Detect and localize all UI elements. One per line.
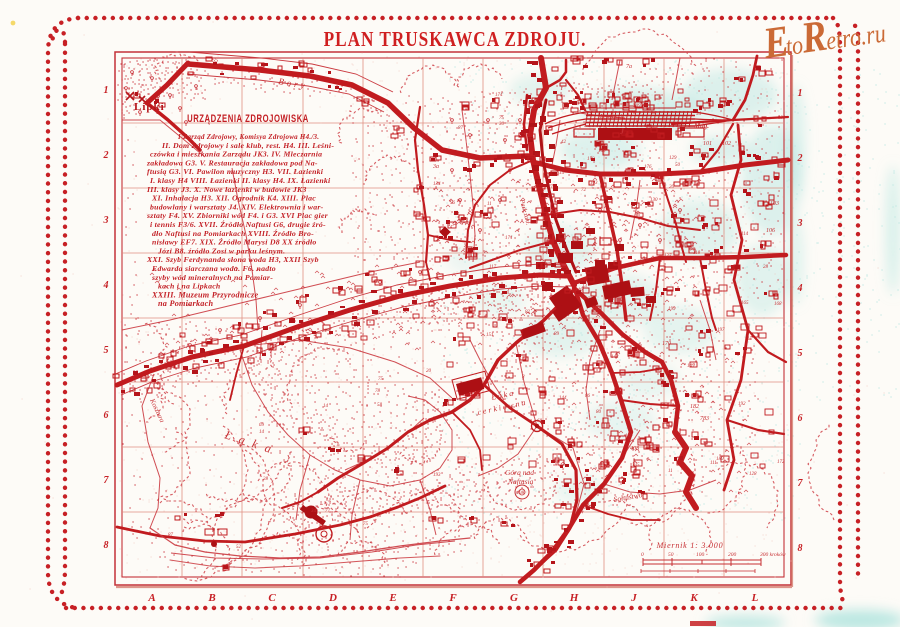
svg-text:172: 172 — [777, 460, 785, 465]
svg-text:I Zarząd Zdrojowy, Komisya Zdr: I Zarząd Zdrojowy, Komisya Zdrojowa H4./… — [177, 133, 319, 141]
svg-text:64: 64 — [640, 259, 646, 264]
svg-text:Góra nad: Góra nad — [505, 468, 534, 477]
svg-text:408: 408 — [516, 489, 525, 496]
svg-text:139: 139 — [778, 116, 786, 121]
svg-text:128: 128 — [749, 472, 757, 477]
svg-text:143: 143 — [611, 355, 619, 360]
svg-text:77: 77 — [690, 248, 696, 253]
svg-text:F: F — [448, 592, 457, 604]
svg-text:2: 2 — [103, 150, 109, 161]
svg-text:50: 50 — [675, 163, 681, 168]
svg-text:193: 193 — [433, 473, 441, 478]
svg-text:8: 8 — [798, 543, 803, 554]
svg-text:182: 182 — [690, 404, 699, 410]
svg-text:28: 28 — [263, 477, 269, 482]
svg-text:URZĄDZENIA ZDROJOWISKA: URZĄDZENIA ZDROJOWISKA — [187, 113, 309, 126]
svg-text:100: 100 — [696, 552, 705, 558]
svg-text:77: 77 — [325, 509, 331, 514]
svg-text:101: 101 — [703, 141, 712, 147]
svg-text:58: 58 — [377, 403, 383, 408]
svg-text:300 kroków: 300 kroków — [759, 552, 786, 558]
svg-text:129: 129 — [669, 156, 677, 161]
svg-text:87: 87 — [458, 126, 464, 131]
svg-text:197: 197 — [717, 328, 725, 333]
svg-text:20: 20 — [426, 369, 432, 374]
svg-text:14: 14 — [259, 430, 265, 435]
svg-text:K: K — [689, 592, 698, 604]
svg-text:200: 200 — [728, 552, 737, 558]
svg-text:20: 20 — [669, 185, 675, 190]
svg-text:kach i na Lipkach: kach i na Lipkach — [158, 282, 221, 291]
svg-text:34: 34 — [311, 509, 317, 514]
svg-text:102: 102 — [722, 141, 731, 147]
svg-text:Józi B8. źródło Zosi w parku l: Józi B8. źródło Zosi w parku leśnym. — [157, 246, 285, 255]
svg-text:15: 15 — [747, 337, 753, 342]
svg-text:170: 170 — [662, 341, 671, 347]
svg-text:6: 6 — [798, 413, 803, 424]
svg-text:dło Naftusi na Pomiarkach XVII: dło Naftusi na Pomiarkach XVIII. Źródło … — [152, 228, 314, 238]
svg-text:nisławy EF7. XIX. Źródło Marys: nisławy EF7. XIX. Źródło Marysi D8 XX źr… — [152, 237, 317, 247]
svg-text:14: 14 — [323, 404, 329, 409]
svg-text:199: 199 — [592, 307, 600, 312]
svg-text:55: 55 — [212, 58, 218, 64]
svg-text:103: 103 — [590, 181, 598, 186]
svg-text:134: 134 — [448, 221, 457, 228]
svg-text:170: 170 — [587, 157, 595, 162]
svg-text:Lipki: Lipki — [134, 101, 165, 113]
svg-text:11: 11 — [668, 469, 673, 474]
svg-text:PLAN TRUSKAWCA ZDROJU.: PLAN TRUSKAWCA ZDROJU. — [324, 29, 587, 52]
svg-text:198: 198 — [599, 466, 607, 471]
svg-text:108: 108 — [598, 149, 606, 154]
svg-text:160: 160 — [625, 434, 633, 439]
svg-text:ftusią G3. VI. Pawilon muzyczn: ftusią G3. VI. Pawilon muzyczny H3. VII.… — [147, 167, 324, 176]
svg-text:3: 3 — [103, 215, 109, 226]
svg-text:80: 80 — [596, 410, 602, 415]
svg-text:C: C — [268, 592, 276, 604]
svg-text:6: 6 — [104, 410, 109, 421]
svg-text:13: 13 — [582, 284, 588, 289]
svg-text:87: 87 — [168, 533, 174, 538]
svg-text:1: 1 — [104, 85, 109, 96]
svg-text:75: 75 — [645, 295, 651, 300]
svg-text:budowlany i warsztaty J4. XIV.: budowlany i warsztaty J4. XIV. Elektrown… — [150, 202, 324, 211]
svg-text:11: 11 — [487, 202, 492, 207]
svg-text:5: 5 — [104, 345, 109, 356]
svg-text:77: 77 — [548, 185, 554, 190]
svg-text:52: 52 — [236, 545, 242, 550]
svg-text:XI. Inhalacja H3. XII. Ogrodni: XI. Inhalacja H3. XII. Ogrodnik K4. XIII… — [151, 194, 316, 203]
svg-text:174: 174 — [495, 93, 503, 98]
svg-text:137: 137 — [664, 254, 672, 259]
svg-text:na Pomiarkach: na Pomiarkach — [158, 299, 214, 308]
svg-text:106: 106 — [766, 228, 775, 234]
svg-text:50: 50 — [668, 552, 674, 558]
svg-text:II. Dom Zdrojowy i sale klub,: II. Dom Zdrojowy i sale klub, rest. H4. … — [161, 141, 334, 150]
svg-text:0: 0 — [641, 552, 644, 558]
svg-text:E: E — [388, 592, 396, 604]
svg-text:szyby wód mineralnych na Pomia: szyby wód mineralnych na Pomiar- — [151, 273, 273, 282]
svg-text:i tennis F3/6. XVII. Źródło Na: i tennis F3/6. XVII. Źródło Naftusi G6, … — [150, 219, 326, 229]
svg-text:42: 42 — [561, 140, 567, 145]
svg-text:B: B — [207, 592, 215, 604]
svg-text:III. klasy J3. X. Nowe łazienk: III. klasy J3. X. Nowe łazienki w budowi… — [146, 185, 307, 194]
svg-text:Mag.: Mag. — [693, 122, 709, 130]
svg-text:75: 75 — [363, 522, 369, 527]
svg-text:4: 4 — [797, 283, 803, 294]
svg-text:171: 171 — [505, 236, 513, 241]
svg-text:89: 89 — [554, 332, 560, 337]
svg-text:Edwarda siarczana woda. F6. na: Edwarda siarczana woda. F6. nadto — [151, 264, 276, 273]
svg-text:180: 180 — [716, 457, 724, 462]
svg-text:L: L — [751, 592, 759, 604]
svg-text:135: 135 — [632, 463, 640, 468]
svg-text:czówka i mieszkania Zarządu JK: czówka i mieszkania Zarządu JK3. IV. Mle… — [150, 150, 322, 159]
svg-text:176: 176 — [644, 165, 652, 170]
svg-text:3a: 3a — [432, 164, 439, 170]
svg-text:zakładowa G3. V. Restauracja z: zakładowa G3. V. Restauracja zakładowa p… — [146, 158, 318, 167]
svg-text:Miernik 1: 3.000: Miernik 1: 3.000 — [656, 541, 724, 550]
svg-text:3: 3 — [797, 218, 803, 229]
svg-text:75: 75 — [499, 116, 505, 121]
svg-text:109: 109 — [633, 104, 641, 109]
svg-text:5: 5 — [798, 348, 803, 359]
svg-text:199: 199 — [668, 307, 676, 312]
svg-text:78: 78 — [375, 389, 381, 394]
svg-text:J: J — [630, 592, 637, 604]
svg-text:192: 192 — [738, 402, 746, 407]
svg-text:14: 14 — [559, 171, 565, 176]
svg-text:A: A — [147, 592, 155, 604]
svg-text:165: 165 — [741, 301, 749, 306]
svg-text:7a: 7a — [626, 64, 632, 70]
svg-text:22: 22 — [322, 329, 328, 334]
svg-text:H: H — [569, 592, 579, 604]
svg-text:G: G — [510, 592, 518, 604]
svg-text:1: 1 — [798, 88, 803, 99]
svg-text:86: 86 — [585, 394, 591, 399]
svg-text:408: 408 — [630, 445, 639, 452]
svg-text:XXIII. Muzeum Przyrodnicze: XXIII. Muzeum Przyrodnicze — [151, 290, 258, 299]
svg-text:sztaty F4. XV. Zbiorniki wód F: sztaty F4. XV. Zbiorniki wód F4. i G3. X… — [146, 211, 329, 220]
svg-text:144: 144 — [559, 396, 567, 401]
svg-text:2: 2 — [797, 153, 803, 164]
svg-text:783: 783 — [700, 416, 709, 422]
svg-text:72: 72 — [581, 188, 587, 193]
svg-text:28: 28 — [763, 265, 769, 270]
svg-text:Naftusią: Naftusią — [507, 477, 534, 486]
svg-text:4: 4 — [103, 280, 109, 291]
svg-text:D: D — [328, 592, 337, 604]
svg-text:168: 168 — [774, 302, 782, 307]
svg-text:134: 134 — [433, 182, 441, 187]
svg-text:117: 117 — [489, 265, 497, 270]
svg-text:151: 151 — [486, 333, 494, 338]
svg-text:130: 130 — [650, 198, 658, 203]
svg-text:111: 111 — [710, 461, 717, 466]
svg-text:96: 96 — [450, 201, 456, 206]
svg-text:54: 54 — [696, 112, 702, 117]
svg-text:82: 82 — [525, 310, 531, 315]
svg-text:68: 68 — [537, 419, 543, 424]
svg-text:8: 8 — [104, 540, 109, 551]
svg-text:30: 30 — [499, 122, 505, 127]
svg-text:I. klasy H4 VIII. Łazienki II: I. klasy H4 VIII. Łazienki II. klasy H4.… — [149, 176, 331, 185]
svg-text:XXI. Szyb Ferdynanda słona wod: XXI. Szyb Ferdynanda słona woda H3, XXII… — [146, 255, 319, 264]
svg-text:69: 69 — [259, 423, 265, 428]
svg-text:103: 103 — [770, 201, 779, 207]
svg-text:75: 75 — [378, 377, 384, 382]
svg-text:95: 95 — [482, 278, 488, 283]
svg-text:Kolej: Kolej — [599, 113, 624, 120]
svg-text:149: 149 — [687, 364, 695, 369]
svg-text:114: 114 — [741, 232, 749, 237]
